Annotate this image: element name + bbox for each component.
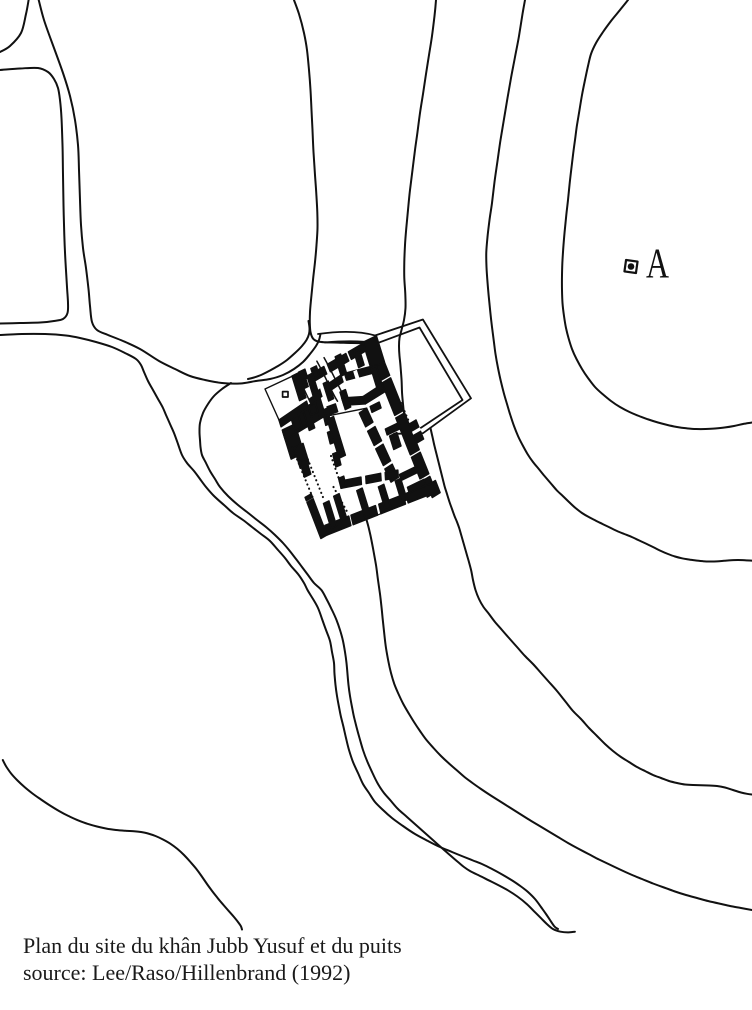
svg-text:A: A <box>646 242 669 288</box>
